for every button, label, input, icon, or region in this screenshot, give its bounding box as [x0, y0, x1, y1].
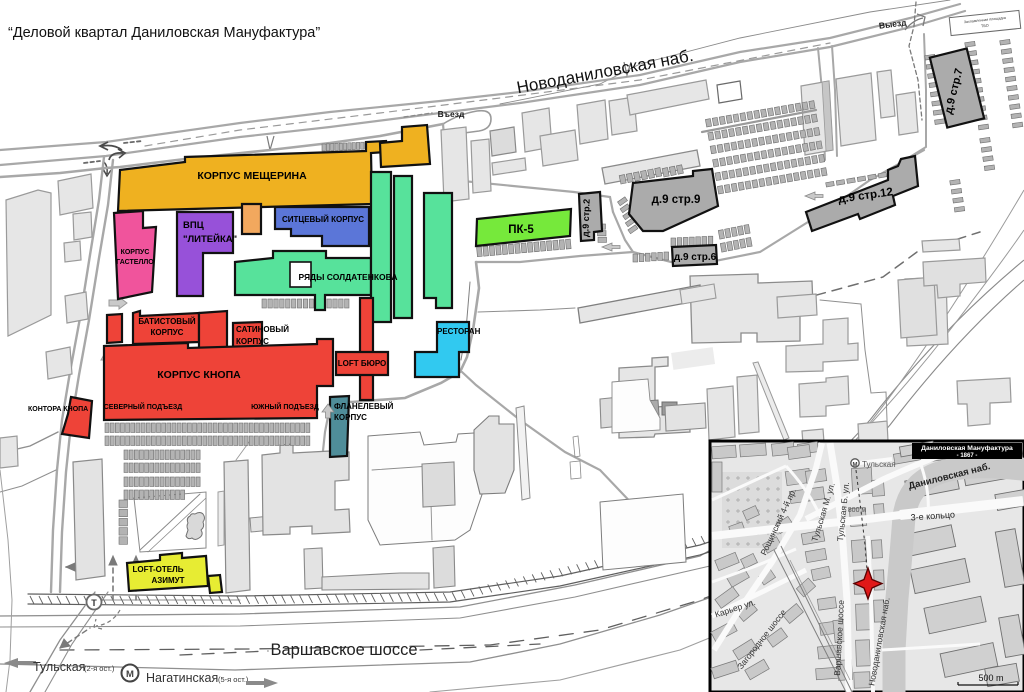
svg-text:ТБО: ТБО [981, 24, 989, 29]
svg-text:LOFT-ОТЕЛЬ: LOFT-ОТЕЛЬ [133, 565, 184, 574]
svg-text:500 m: 500 m [978, 673, 1003, 683]
svg-text:СИТЦЕВЫЙ КОРПУС: СИТЦЕВЫЙ КОРПУС [282, 215, 364, 224]
svg-text:ПК-5: ПК-5 [508, 224, 534, 236]
svg-text:КОНТОРА КНОПА: КОНТОРА КНОПА [28, 406, 88, 413]
svg-text:(2-я ост.): (2-я ост.) [84, 664, 115, 673]
svg-text:Т: Т [91, 598, 97, 608]
svg-text:РЕСТОРАН: РЕСТОРАН [437, 327, 481, 336]
svg-text:БАТИСТОВЫЙ: БАТИСТОВЫЙ [138, 317, 196, 326]
svg-text:КОРПУС: КОРПУС [334, 413, 367, 422]
svg-text:д.9 стр.9: д.9 стр.9 [652, 194, 701, 206]
svg-text:САТИНОВЫЙ: САТИНОВЫЙ [236, 325, 289, 334]
svg-text:КОРПУС МЕЩЕРИНА: КОРПУС МЕЩЕРИНА [197, 170, 307, 182]
svg-text:КОРПУС: КОРПУС [151, 328, 184, 337]
svg-text:(5-я ост.): (5-я ост.) [218, 675, 249, 684]
svg-text:СЕВЕРНЫЙ ПОДЪЕЗД: СЕВЕРНЫЙ ПОДЪЕЗД [104, 402, 183, 411]
svg-text:ГАСТЕЛЛО: ГАСТЕЛЛО [116, 259, 154, 266]
svg-text:Варшавское шоссе: Варшавское шоссе [270, 641, 417, 659]
svg-text:Даниловская Мануфактура: Даниловская Мануфактура [921, 445, 1013, 452]
svg-text:М: М [853, 463, 858, 469]
svg-text:КОРПУС КНОПА: КОРПУС КНОПА [157, 369, 241, 381]
svg-text:LOFT БЮРО: LOFT БЮРО [338, 359, 387, 368]
svg-text:д.9 стр.2: д.9 стр.2 [580, 199, 591, 237]
svg-text:РЯДЫ СОЛДАТЕНКОВА: РЯДЫ СОЛДАТЕНКОВА [298, 272, 397, 282]
svg-text:АЗИМУТ: АЗИМУТ [151, 576, 184, 585]
svg-text:Нагатинская: Нагатинская [146, 671, 218, 685]
svg-text:ФЛАНЕЛЕВЫЙ: ФЛАНЕЛЕВЫЙ [334, 402, 394, 411]
svg-text:д.9 стр.6: д.9 стр.6 [674, 252, 717, 263]
svg-text:М: М [126, 669, 134, 680]
svg-text:КОРПУС: КОРПУС [121, 249, 150, 256]
svg-text:800 м: 800 м [848, 507, 867, 514]
svg-text:ЮЖНЫЙ ПОДЪЕЗД: ЮЖНЫЙ ПОДЪЕЗД [251, 402, 319, 411]
svg-text:- 1867 -: - 1867 - [957, 453, 978, 459]
svg-text:Въезд: Въезд [438, 109, 465, 119]
svg-text:"ЛИТЕЙКА": "ЛИТЕЙКА" [183, 233, 237, 245]
svg-text:Тульская: Тульская [862, 460, 896, 469]
svg-text:Тульская: Тульская [33, 660, 85, 674]
svg-text:ВПЦ: ВПЦ [183, 220, 204, 231]
svg-text:“Деловой квартал Даниловская М: “Деловой квартал Даниловская Мануфактура… [8, 25, 320, 41]
